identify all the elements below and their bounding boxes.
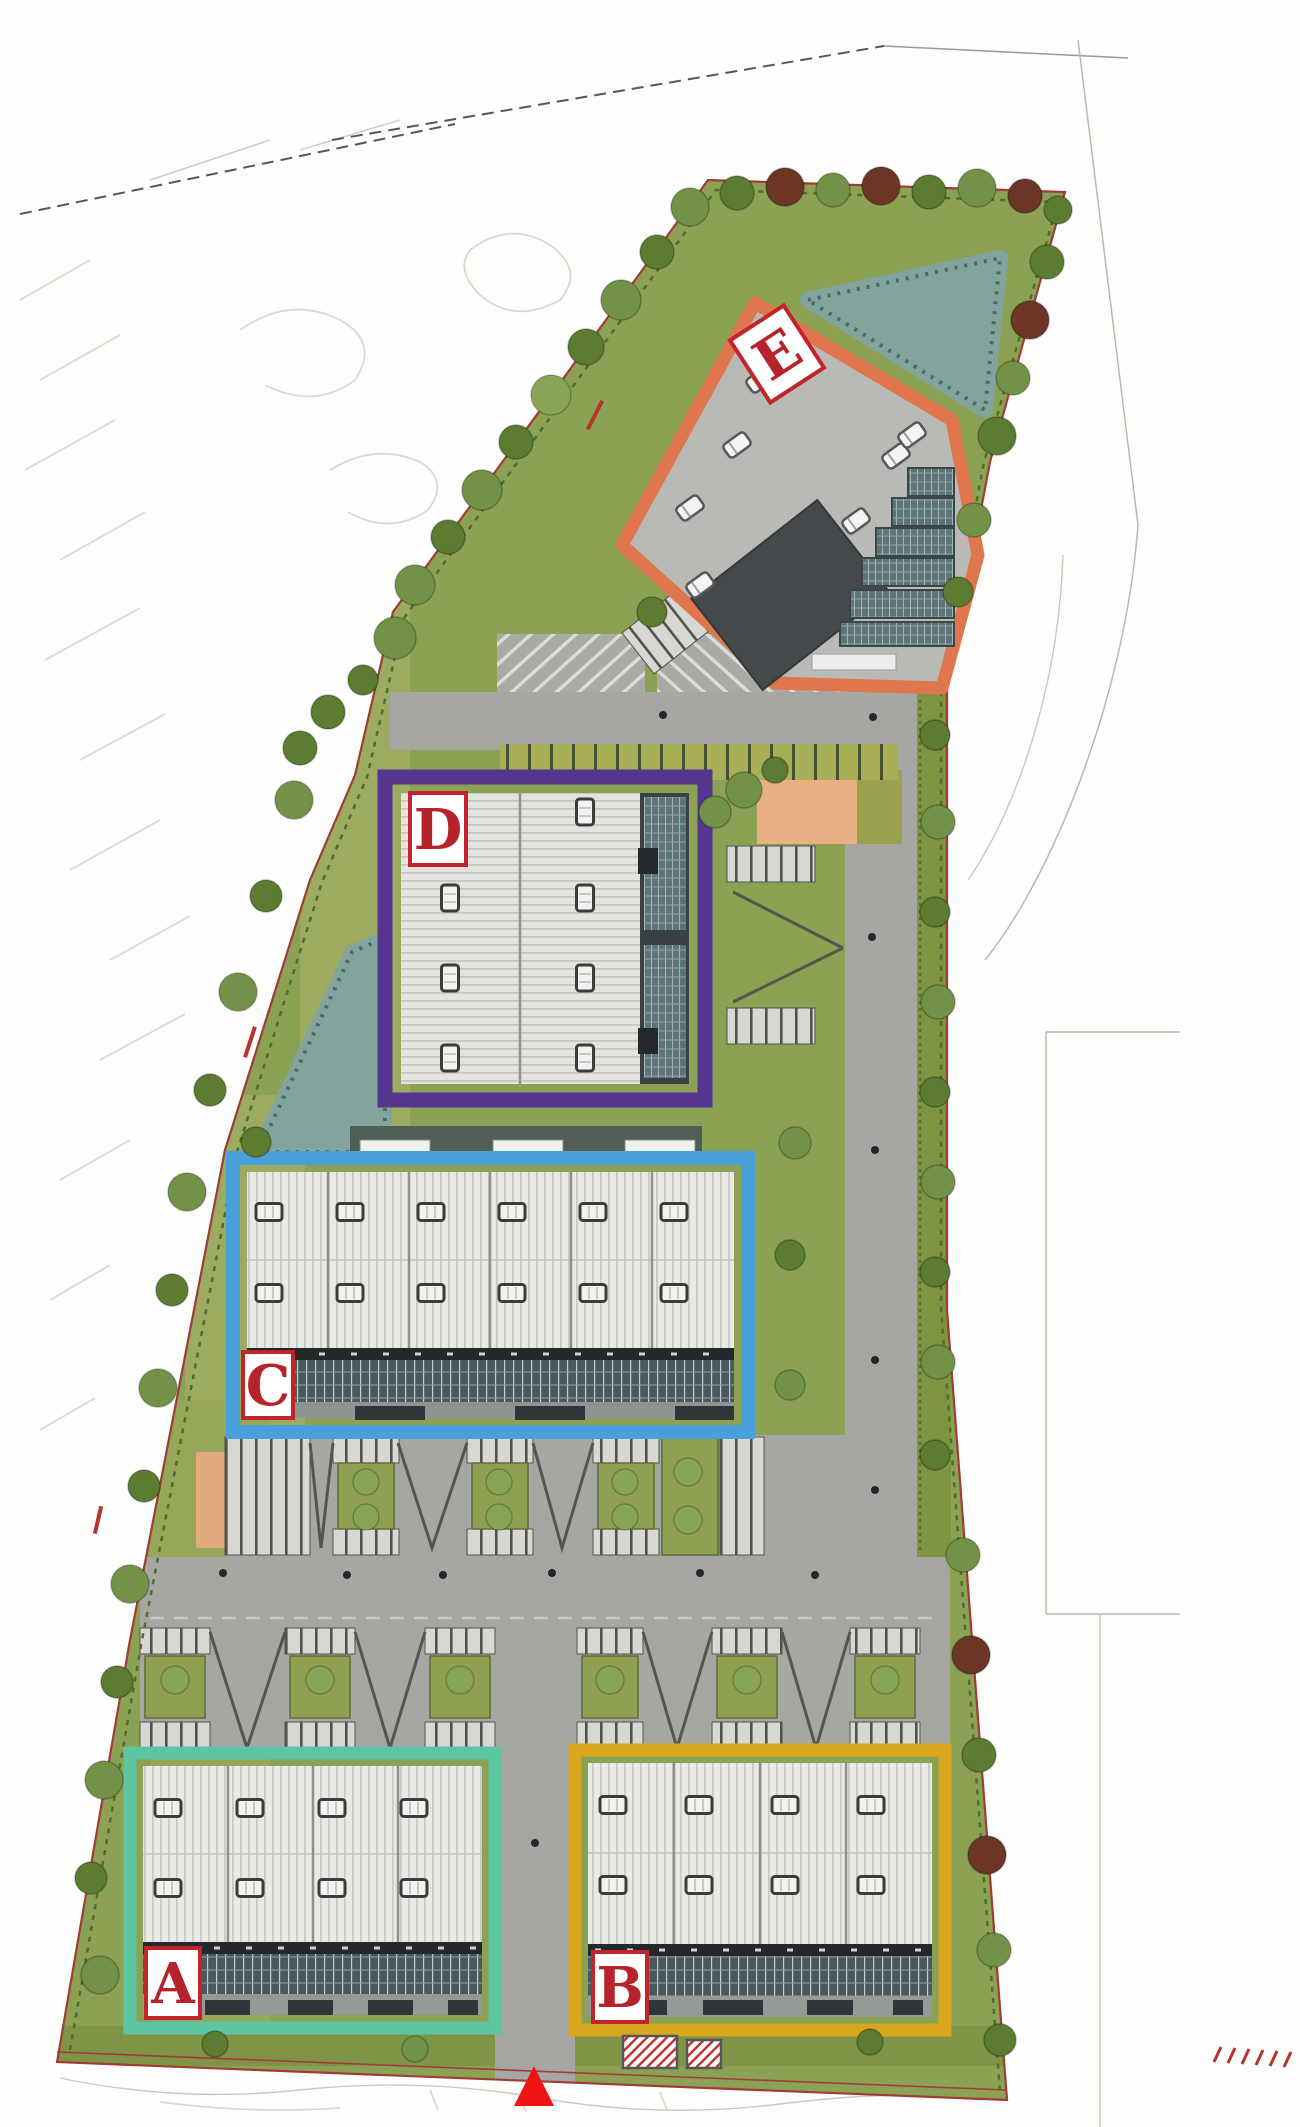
site-masterplan-canvas: E D C A B (0, 0, 1300, 2127)
substations (623, 2036, 721, 2068)
plot-label-b: B (593, 1952, 647, 2022)
plot-c (233, 1158, 748, 1432)
plot-label-d-letter: D (414, 797, 463, 863)
parking-row-north (225, 1437, 764, 1555)
plot-label-a-letter: A (150, 1951, 196, 2017)
road-east-west-upper (390, 692, 855, 750)
plot-label-b-letter: B (596, 1955, 643, 2021)
plot-label-c: C (243, 1352, 293, 1419)
plot-label-a: A (146, 1948, 200, 2018)
site-masterplan-drawing: E D C A B (0, 0, 1300, 2127)
road-central-access (495, 1622, 575, 2085)
building-e-canopy (812, 654, 896, 670)
building-d-glazing-south (644, 945, 686, 1078)
road-east-west-main (140, 1557, 950, 1622)
plot-label-c-letter: C (246, 1353, 291, 1419)
building-c-front-elevation (247, 1360, 734, 1402)
plot-label-d: D (410, 793, 466, 865)
